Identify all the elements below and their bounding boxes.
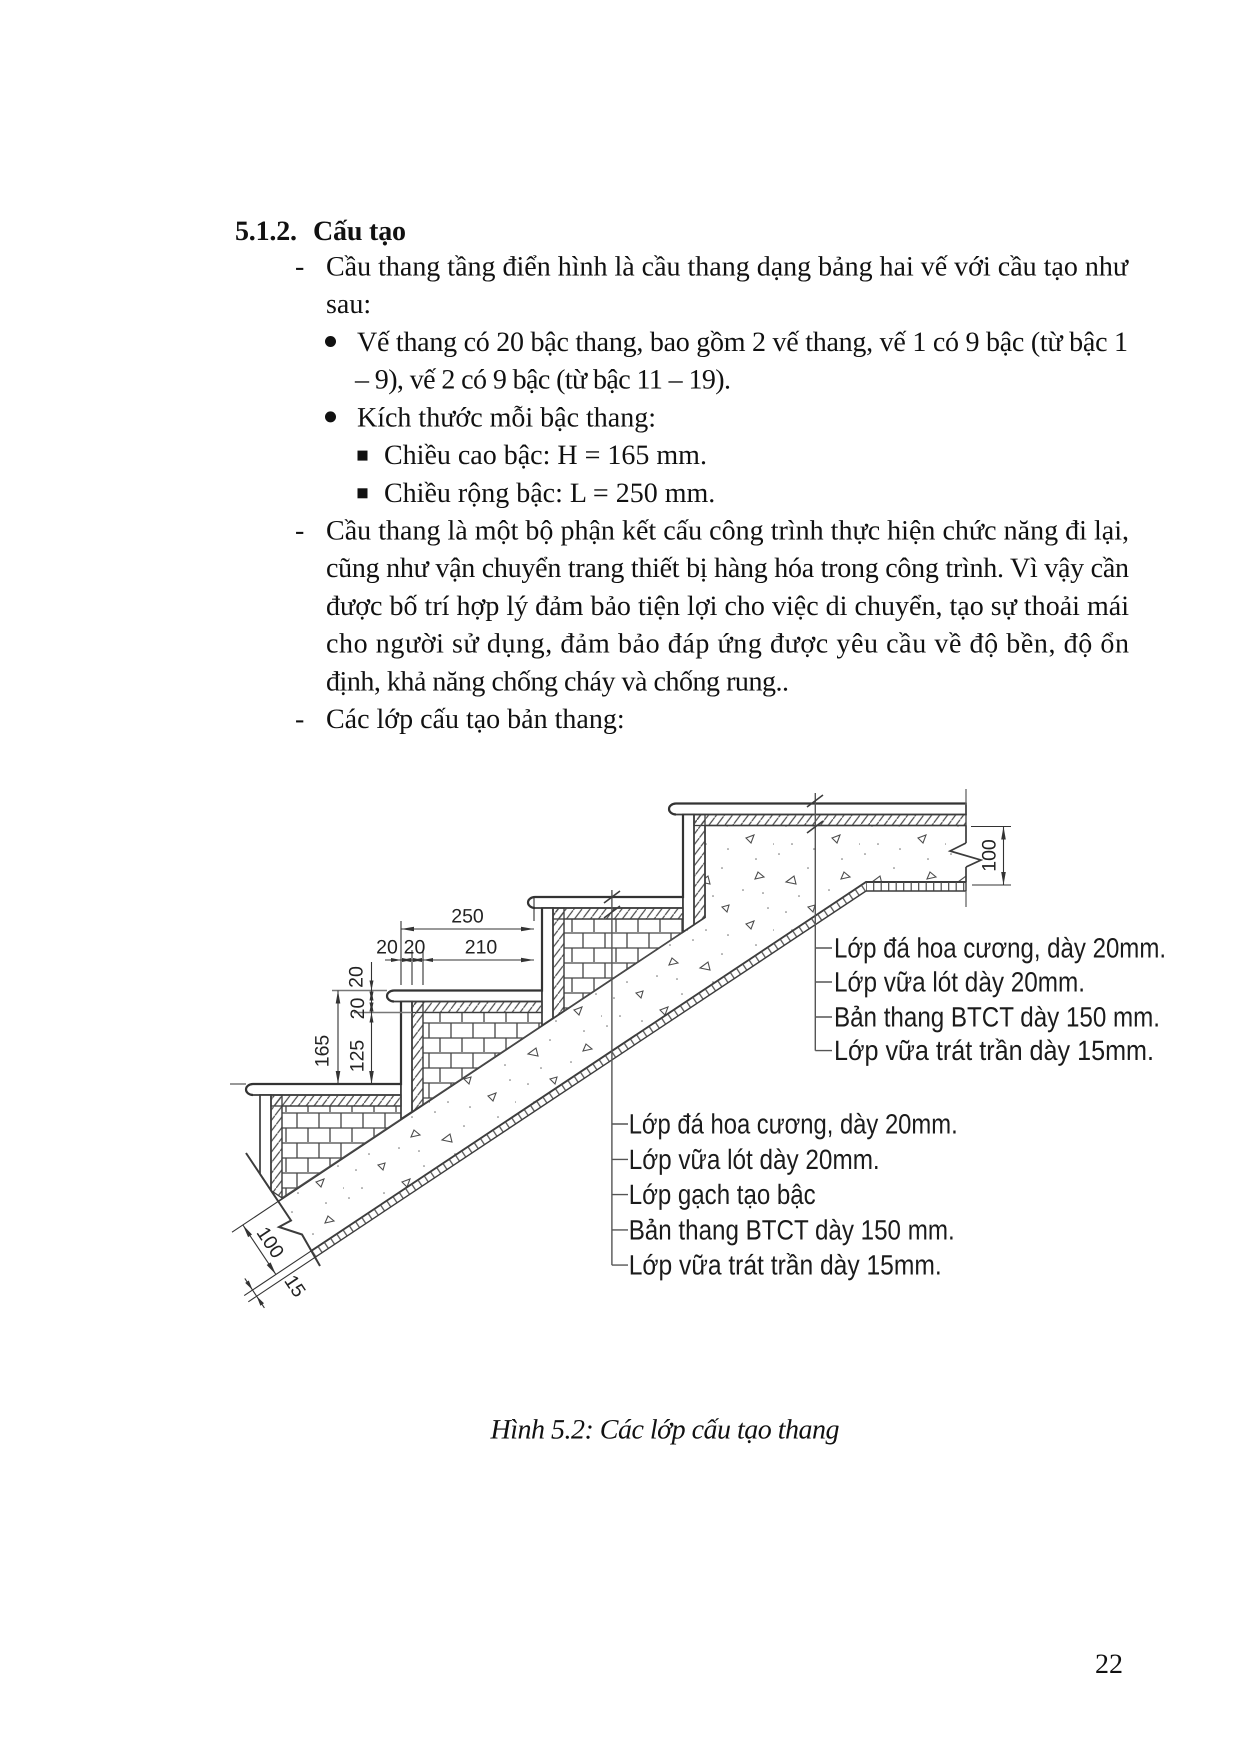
svg-text:được bố trí hợp lý đảm bảo tiệ: được bố trí hợp lý đảm bảo tiện lợi cho …: [326, 591, 1129, 622]
svg-text:Lớp vữa trát trần dày 15mm.: Lớp vữa trát trần dày 15mm.: [629, 1250, 942, 1281]
svg-text:Lớp đá hoa cương, dày 20mm.: Lớp đá hoa cương, dày 20mm.: [834, 933, 1166, 964]
svg-text:Vế thang có 20 bậc thang, bao: Vế thang có 20 bậc thang, bao gồm 2 vế t…: [357, 327, 1128, 358]
svg-text:Lớp vữa lót dày 20mm.: Lớp vữa lót dày 20mm.: [834, 967, 1085, 998]
svg-text:cũng như vận chuyển trang thiế: cũng như vận chuyển trang thiết bị hàng …: [326, 553, 1129, 584]
svg-text:sau:: sau:: [326, 289, 371, 320]
svg-text:định, khả năng chống cháy và c: định, khả năng chống cháy và chống rung.…: [326, 666, 789, 697]
svg-text:20: 20: [404, 937, 426, 959]
svg-text:100: 100: [979, 839, 1001, 872]
svg-text:22: 22: [1095, 1649, 1123, 1680]
svg-text:20: 20: [347, 998, 369, 1020]
svg-text:5.1.2.: 5.1.2.: [235, 216, 297, 247]
svg-text:250: 250: [451, 906, 484, 928]
svg-text:Lớp đá hoa cương, dày 20mm.: Lớp đá hoa cương, dày 20mm.: [629, 1109, 958, 1140]
svg-text:20: 20: [376, 937, 398, 959]
svg-text:-: -: [295, 704, 304, 735]
svg-text:– 9), vế 2 có 9 bậc (từ bậc 11: – 9), vế 2 có 9 bậc (từ bậc 11 – 19).: [354, 365, 731, 396]
svg-text:Lớp gạch tạo bậc: Lớp gạch tạo bậc: [629, 1179, 816, 1210]
svg-text:cho người sử dụng, đảm bảo đáp: cho người sử dụng, đảm bảo đáp ứng được …: [326, 629, 1129, 660]
svg-text:Các lớp cấu tạo bản thang:: Các lớp cấu tạo bản thang:: [326, 704, 625, 735]
svg-text:Bản thang BTCT dày 150 mm.: Bản thang BTCT dày 150 mm.: [834, 1002, 1160, 1033]
svg-text:Lớp vữa trát trần dày 15mm.: Lớp vữa trát trần dày 15mm.: [834, 1035, 1154, 1066]
svg-text:-: -: [295, 516, 304, 547]
svg-text:Cầu thang là một bộ phận kết c: Cầu thang là một bộ phận kết cấu công tr…: [326, 516, 1129, 547]
svg-text:-: -: [295, 252, 304, 283]
svg-text:210: 210: [465, 937, 498, 959]
svg-text:15: 15: [279, 1271, 309, 1301]
svg-text:20: 20: [346, 966, 368, 988]
svg-text:Hình 5.2: Các lớp cấu tạo than: Hình 5.2: Các lớp cấu tạo thang: [490, 1414, 840, 1445]
svg-text:Kích thước mỗi bậc thang:: Kích thước mỗi bậc thang:: [357, 402, 656, 433]
svg-text:Lớp vữa lót dày 20mm.: Lớp vữa lót dày 20mm.: [629, 1144, 880, 1175]
svg-text:Cầu thang tầng điển hình là cầ: Cầu thang tầng điển hình là cầu thang dạ…: [326, 252, 1129, 283]
svg-text:Chiều cao bậc: H = 165 mm.: Chiều cao bậc: H = 165 mm.: [384, 440, 707, 471]
svg-text:Chiều rộng bậc: L = 250 mm.: Chiều rộng bậc: L = 250 mm.: [384, 478, 715, 509]
svg-text:Bản thang BTCT dày 150 mm.: Bản thang BTCT dày 150 mm.: [629, 1214, 955, 1245]
svg-text:165: 165: [312, 1035, 334, 1068]
svg-text:Cấu tạo: Cấu tạo: [313, 216, 406, 247]
svg-text:125: 125: [347, 1040, 369, 1073]
